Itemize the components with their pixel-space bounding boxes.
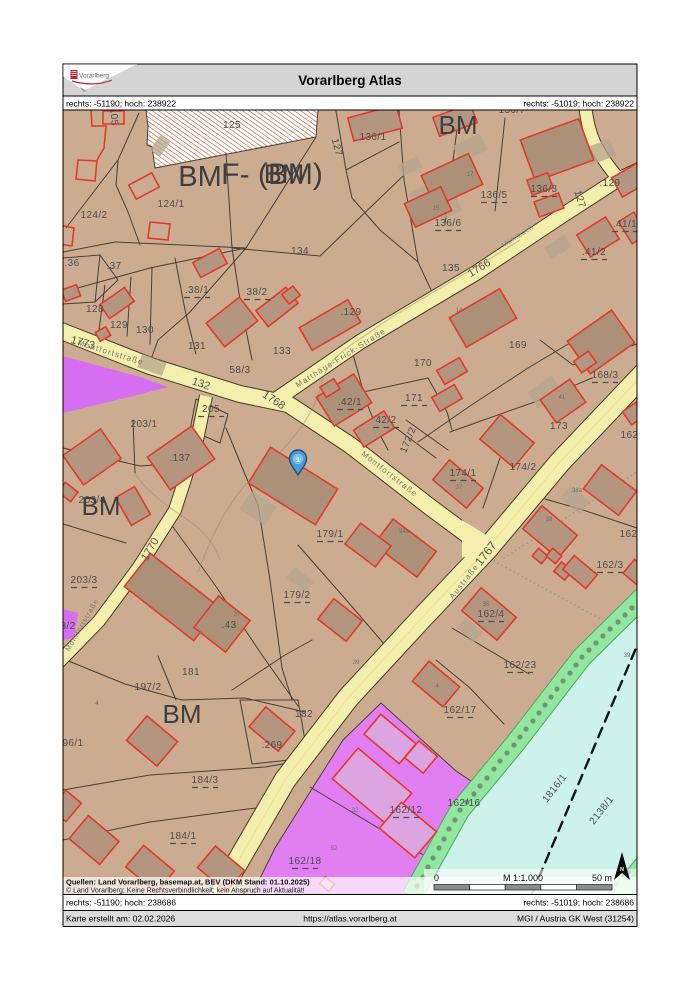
svg-text:136/6: 136/6 [434, 218, 461, 229]
svg-text:rechts: -51190; hoch: 238686: rechts: -51190; hoch: 238686 [66, 898, 176, 908]
svg-text:131: 131 [188, 341, 206, 352]
svg-text:181: 181 [182, 667, 200, 678]
svg-text:15: 15 [433, 206, 440, 212]
svg-text:.37: .37 [106, 261, 121, 272]
svg-text:162/18: 162/18 [289, 856, 322, 867]
svg-text:rechts: -51190; hoch: 238922: rechts: -51190; hoch: 238922 [66, 99, 176, 109]
svg-text:130: 130 [136, 325, 154, 336]
svg-text:37: 37 [456, 485, 463, 491]
svg-text:BM: BM [439, 110, 478, 140]
svg-text:BM: BM [178, 161, 222, 193]
svg-text:.137: .137 [169, 453, 190, 464]
svg-text:162/4: 162/4 [477, 609, 504, 620]
svg-text:.42/1: .42/1 [338, 397, 362, 408]
svg-text:MGI / Austria GK West (31254): MGI / Austria GK West (31254) [517, 914, 634, 924]
svg-text:BM: BM [163, 699, 202, 729]
svg-text:124/1: 124/1 [157, 199, 184, 210]
svg-text:133: 133 [273, 346, 291, 357]
svg-text:170: 170 [414, 358, 432, 369]
svg-text:179/1: 179/1 [316, 529, 343, 540]
svg-text:BM: BM [264, 159, 305, 189]
svg-text:.269: .269 [261, 740, 282, 751]
svg-text:41: 41 [559, 395, 566, 401]
svg-text:168/3: 168/3 [591, 370, 618, 381]
svg-text:36: 36 [483, 602, 490, 608]
svg-text:136/5: 136/5 [480, 190, 507, 201]
svg-text:171: 171 [405, 393, 423, 404]
svg-text:173: 173 [550, 421, 568, 432]
svg-text:.129: .129 [599, 178, 620, 189]
svg-text:39: 39 [624, 653, 631, 659]
svg-text:197/2: 197/2 [134, 682, 161, 693]
svg-text:14: 14 [456, 308, 463, 314]
svg-text:58/3: 58/3 [229, 365, 250, 376]
svg-text:129: 129 [110, 320, 128, 331]
svg-text:Vorarlberg: Vorarlberg [79, 73, 109, 80]
svg-text:162/23: 162/23 [504, 660, 537, 671]
svg-text:162/17: 162/17 [444, 705, 477, 716]
svg-text:Vorarlberg Atlas: Vorarlberg Atlas [298, 73, 402, 88]
svg-text:162/12: 162/12 [390, 805, 423, 816]
svg-text:M 1:1.000: M 1:1.000 [503, 873, 543, 883]
svg-text:rechts: -51019; hoch: 238922: rechts: -51019; hoch: 238922 [523, 99, 634, 109]
svg-text:184/1: 184/1 [169, 831, 196, 842]
svg-text:37: 37 [234, 612, 241, 618]
svg-text:128: 128 [86, 304, 104, 315]
svg-text:.38/1: .38/1 [185, 285, 209, 296]
svg-text:125: 125 [223, 120, 241, 131]
svg-text:124/2: 124/2 [80, 210, 107, 221]
svg-text:203/3: 203/3 [70, 575, 97, 586]
svg-text:169: 169 [509, 340, 527, 351]
svg-text:38a: 38a [572, 488, 583, 494]
svg-text:32: 32 [352, 808, 359, 814]
svg-text:162/3: 162/3 [596, 560, 623, 571]
svg-text:182: 182 [295, 709, 313, 720]
svg-text:134: 134 [291, 246, 309, 257]
svg-text:38: 38 [546, 517, 553, 523]
svg-text:© Land Vorarlberg; Keine Recht: © Land Vorarlberg; Keine Rechtsverbindli… [66, 887, 305, 895]
svg-text:.43: .43 [221, 620, 236, 631]
svg-text:0: 0 [434, 873, 439, 883]
svg-text:.129: .129 [340, 307, 361, 318]
svg-text:162/16: 162/16 [448, 798, 481, 809]
svg-text:174/1: 174/1 [449, 468, 476, 479]
svg-text:136/1: 136/1 [359, 132, 386, 143]
svg-text:136/3: 136/3 [530, 184, 557, 195]
svg-text:34a: 34a [399, 529, 410, 535]
svg-text:135: 135 [442, 263, 460, 274]
svg-text:.36: .36 [64, 258, 79, 269]
svg-text:42/2: 42/2 [375, 415, 396, 426]
svg-text:179/2: 179/2 [283, 590, 310, 601]
svg-text:N: N [620, 867, 624, 873]
svg-text:Quellen: Land Vorarlberg, base: Quellen: Land Vorarlberg, basemap.at, BE… [66, 878, 310, 887]
svg-text:BM: BM [82, 491, 121, 521]
svg-text:17: 17 [467, 172, 474, 178]
svg-text:50 m: 50 m [592, 873, 612, 883]
svg-text:203/1: 203/1 [130, 419, 157, 430]
svg-text:https://atlas.vorarlberg.at: https://atlas.vorarlberg.at [303, 914, 397, 924]
svg-text:rechts: -51019; hoch: 238686: rechts: -51019; hoch: 238686 [523, 898, 634, 908]
svg-text:184/3: 184/3 [191, 775, 218, 786]
svg-text:1: 1 [296, 455, 300, 464]
svg-text:205: 205 [202, 404, 220, 415]
svg-text:39: 39 [353, 660, 360, 666]
svg-text:Karte erstellt am: 02.02.2026: Karte erstellt am: 02.02.2026 [66, 914, 175, 924]
svg-text:.41/1: .41/1 [613, 219, 637, 230]
svg-text:38/2: 38/2 [246, 287, 267, 298]
svg-text:174/2: 174/2 [509, 462, 536, 473]
svg-text:52: 52 [331, 846, 338, 852]
svg-text:.41/2: .41/2 [582, 247, 606, 258]
